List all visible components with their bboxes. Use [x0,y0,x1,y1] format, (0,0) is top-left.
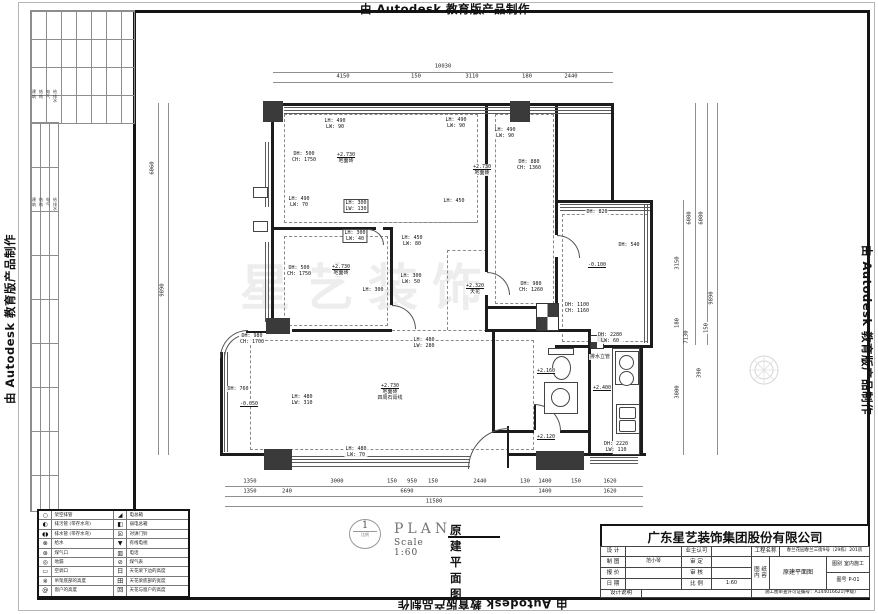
mark-icon: @ [39,586,52,595]
legend-label: 电总箱 [127,511,188,519]
legend-label: 排污管 (带存水弯) [52,520,114,528]
plan-title-cn: 原建平面图 [450,522,462,602]
plan-annotation: +2.160 [536,368,556,374]
column [510,101,530,122]
discipline-labels-2: 建筑结构电气给排水 [31,198,58,212]
wall [220,352,223,455]
discipline-label: 建筑 [31,90,37,104]
wall [485,295,488,332]
plan-annotation: +2.730地面砖四周石膏线 [376,383,403,401]
plan-annotation: LH: 300LW: 40 [342,229,367,243]
autodesk-watermark-right: 由 Autodesk 教育版产品制作 [861,241,875,419]
ac-outlet-icon: ▭ [39,567,52,575]
tb-number: 图号P-01 [826,572,870,590]
dimension-line [695,103,696,345]
wall [650,200,653,347]
dimension-label: 3150 [675,255,681,270]
dimension-label: 390 [697,367,703,379]
ceiling-dashed-rect [284,114,478,223]
plan-annotation: +2.120 [536,434,556,440]
drain-pipe-icon: ◖◗ [39,530,52,538]
dimension-line [225,506,643,507]
window-line [560,207,650,208]
ceiling-dashed-rect [284,236,388,326]
tb-category: 图别室内施工 [826,556,870,573]
plan-scale: Scale 1:60 [394,538,424,558]
wall [508,453,536,456]
plan-annotation: LH: 490LW: 90 [493,127,516,139]
legend-label: 吊架底部的高度 [52,577,114,585]
window-line [284,459,470,460]
legend-label: 有线电视 [127,539,188,547]
plan-annotation: LH: 450 [442,198,465,204]
autodesk-watermark-left: 由 Autodesk 教育版产品制作 [2,230,16,408]
plan-annotation: +2.320天花 [465,283,485,295]
legend-row: ※吊架底部的高度田天花梁底部的宽度 [39,577,188,586]
window-line [284,113,512,114]
signoff-strip [30,122,59,512]
dimension-label: 2440 [472,479,487,485]
window-line [530,113,611,114]
dimension-label: 1400 [537,479,552,485]
sewage-pipe-icon: ◐ [39,520,52,528]
wall [640,347,643,455]
plan-annotation: DH: 1100CH: 1160 [564,302,590,314]
mark-icon: 田 [114,577,127,585]
wall [557,200,653,203]
legend-label: 给水 [52,539,114,547]
legend-row: ⊗给水▼有线电视 [39,539,188,548]
legend-row: @窗户的高度回天花与窗户的高度 [39,586,188,595]
dimension-label: 150 [386,479,398,485]
dimension-label: 130 [519,479,531,485]
plan-annotation: DH: 500CH: 1750 [291,151,317,163]
dimension-line [168,103,169,455]
dimension-label: 2440 [563,74,578,80]
window-line [560,204,650,205]
window-line [647,205,648,343]
plan-annotation: DH: 500CH: 1750 [286,265,312,277]
legend-label: 煤气口 [52,549,114,557]
discipline-label: 给排水 [52,90,58,104]
plan-annotation: LH: 450LW: 80 [400,235,423,247]
plan-annotation: LH: 490LW: 70 [287,196,310,208]
discipline-label: 结构 [38,90,44,104]
fixture-sink-bowl [619,420,636,432]
plan-annotation: LH: 300LW: 50 [399,273,422,285]
wall [485,227,488,272]
dimension-label: 3800 [675,384,681,399]
wall [555,103,558,203]
legend-label: 排水管 (带存水弯) [52,530,114,538]
autodesk-watermark-bottom: 由 Autodesk 教育版产品制作 [340,596,625,612]
plan-number-sub: 比例 [350,532,380,538]
plan-annotation: LH: 480LW: 280 [412,337,435,349]
window-line [284,462,470,463]
wall [611,103,614,202]
legend-row: ◎地漏⊘煤气表 [39,558,188,567]
plan-annotation: DH: 980CH: 1700 [239,333,265,345]
wall [492,332,495,432]
plan-annotation: LH: 480LW: 310 [290,394,313,406]
dimension-label: 1350 [242,479,257,485]
door-arc [368,229,384,245]
column [266,318,290,334]
dimension-label: 3000 [329,479,344,485]
legend-label: 天花梁底部的宽度 [127,577,188,585]
gas-meter-icon: ⊘ [114,558,127,566]
beam-dashed-line [447,250,448,330]
floor-drain-icon: ◎ [39,558,52,566]
window-line [284,456,470,457]
dimension-line [717,103,718,455]
plan-annotation: +2.400 [592,385,612,391]
plan-annotation: LH: 490LW: 90 [323,118,346,130]
dimension-label: 3110 [464,74,479,80]
column [263,101,283,122]
dimension-label: 1620 [602,479,617,485]
plan-annotation: +2.730地面砖 [331,264,351,276]
discipline-label: 建筑 [31,198,37,212]
ceiling-dashed-rect [562,214,648,342]
dimension-line [158,103,159,455]
dimension-label: 240 [281,489,293,495]
dimension-line [707,103,708,345]
dimension-label: 4150 [335,74,350,80]
dimension-line [273,72,613,73]
dimension-line [225,486,643,487]
fixture-basin [551,388,570,407]
legend-label: 地漏 [52,558,114,566]
legend-label: 天花与窗户的高度 [127,586,188,595]
legend-row: ○架空排管◢电总箱 [39,511,188,520]
ceiling-dashed-rect [495,114,554,304]
wall [588,432,591,455]
cable-tv-icon: ▼ [114,539,127,547]
dimension-line [683,200,684,455]
legend-label: 电话 [127,549,188,557]
fixture-burner [619,355,634,370]
wall [555,203,558,235]
discipline-label: 给排水 [52,198,58,212]
dimension-label: 180 [675,317,681,329]
water-supply-icon: ⊗ [39,539,52,547]
column [536,451,584,470]
plan-annotation: LH: 480LW: 70 [344,446,367,458]
legend-label: 架空排管 [52,511,114,519]
legend-row: ◖◗排水管 (带存水弯)☒对讲门铃 [39,530,188,539]
legend-body: ○架空排管◢电总箱◐排污管 (带存水弯)◧弱电总箱◖◗排水管 (带存水弯)☒对讲… [39,511,188,596]
window-line [284,110,512,111]
tb-permit: 施工图审查许可证编号：A144016621(甲级) [751,589,870,598]
dimension-label: 6080 [687,210,693,225]
dimension-label: 150 [704,322,710,334]
dimension-label: 11580 [425,499,444,505]
discipline-labels-1: 建筑结构电气给排水 [31,90,58,104]
plan-annotation: DH: 540 [617,242,640,248]
dimension-label: 6060 [150,160,156,175]
tb-note-value [641,589,752,598]
company-stamp [748,354,780,386]
legend-label: 空调口 [52,567,114,575]
legend-label: 天花梁下边的高度 [127,567,188,575]
window-line [224,352,225,452]
plan-annotation: DH: 2220LW: 110 [603,441,629,453]
plan-annotation: DH: 980CH: 1260 [518,281,544,293]
window-line [268,242,269,322]
legend-label: 弱电总箱 [127,520,188,528]
plan-title-en: PLAN [394,521,451,537]
window-line [590,457,638,458]
plan-annotation: LH: 300LW: 130 [343,199,368,213]
discipline-label: 结构 [38,198,44,212]
plan-annotation: DH: 820 [585,209,608,215]
legend-row: ⊛煤气口▥电话 [39,549,188,558]
beam-dashed-line [284,222,476,223]
dimension-label: 9890 [709,290,715,305]
plan-annotation: +2.730地面砖 [336,152,356,164]
dimension-label: 150 [427,479,439,485]
legend-row: ◐排污管 (带存水弯)◧弱电总箱 [39,520,188,529]
plan-annotation: 排水立管 [589,354,611,360]
wall [292,329,392,332]
gas-outlet-icon: ⊛ [39,549,52,557]
dimension-label: 9890 [160,282,166,297]
window-line [590,463,638,464]
fixture-burner [619,371,634,386]
signoff-table-top [30,10,135,124]
discipline-label: 电气 [45,198,51,212]
cad-sheet: 由 Autodesk 教育版产品制作 由 Autodesk 教育版产品制作 由 … [0,0,878,614]
sheet-border [18,2,19,610]
wall [390,227,393,305]
window-line [644,205,645,343]
pipe-icon: ○ [39,511,52,519]
plan-number-bubble: 1 比例 [349,519,381,549]
window-line [284,107,512,108]
power-box-icon: ◢ [114,511,127,519]
fixture-sink-bowl [619,407,636,419]
plan-annotation: DH: 880CH: 1360 [516,159,542,171]
legend-row: ▭空调口日天花梁下边的高度 [39,567,188,576]
dimension-label: 150 [570,479,582,485]
duct-shaft [536,303,559,331]
window-bay [253,221,268,232]
legend-label: 对讲门铃 [127,530,188,538]
tb-content-value: 原建平面图 [769,556,827,590]
intercom-icon: ☒ [114,530,127,538]
mark-icon: 回 [114,586,127,595]
company-name: 广东星艺装饰集团股份有限公司 [602,526,868,547]
dimension-label: 1350 [242,489,257,495]
window-line [530,107,611,108]
plan-annotation: LH: 300 [361,287,384,293]
legend-label: 煤气表 [127,558,188,566]
dimension-line [273,82,613,83]
discipline-label: 电气 [45,90,51,104]
wall [271,103,274,331]
fixture-toilet-tank [548,348,574,355]
beam-dashed-line [447,250,487,251]
dimension-label: 1400 [537,489,552,495]
dimension-label: 6690 [399,489,414,495]
mark-icon: 日 [114,567,127,575]
tb-content-label: 图 纸内 容 [751,556,770,590]
dimension-label: 10030 [434,64,453,70]
plan-annotation: LH: 490LW: 90 [444,117,467,129]
dimension-label: 7130 [684,329,690,344]
dimension-label: 950 [406,479,418,485]
window-line [265,242,266,322]
wall [273,103,613,106]
dimension-label: 1620 [602,489,617,495]
lv-power-box-icon: ◧ [114,520,127,528]
plan-annotation: DH: 2280LW: 60 [597,332,623,344]
window-line [268,142,269,207]
dimension-label: 180 [521,74,533,80]
plan-annotation: -0.100 [587,262,607,268]
legend: ○架空排管◢电总箱◐排污管 (带存水弯)◧弱电总箱◖◗排水管 (带存水弯)☒对讲… [37,509,190,598]
dimension-label: 6080 [699,210,705,225]
column [264,449,292,470]
window-line [227,352,228,452]
dimension-line [225,496,643,497]
window-line [530,110,611,111]
window-line [284,466,470,467]
dimension-label: 150 [410,74,422,80]
window-line [590,460,638,461]
beam-dashed-line [392,330,487,331]
legend-label: 窗户的高度 [52,586,114,595]
mark-icon: ※ [39,577,52,585]
window-bay [253,187,268,198]
plan-annotation: +2.730地面砖 [472,164,492,176]
wall [560,430,590,433]
plan-annotation: -0.050 [239,401,259,407]
plan-number: 1 [350,520,380,531]
autodesk-watermark-top: 由 Autodesk 教育版产品制作 [360,1,530,17]
plan-annotation: DH: 760 [226,386,249,392]
telephone-icon: ▥ [114,549,127,557]
